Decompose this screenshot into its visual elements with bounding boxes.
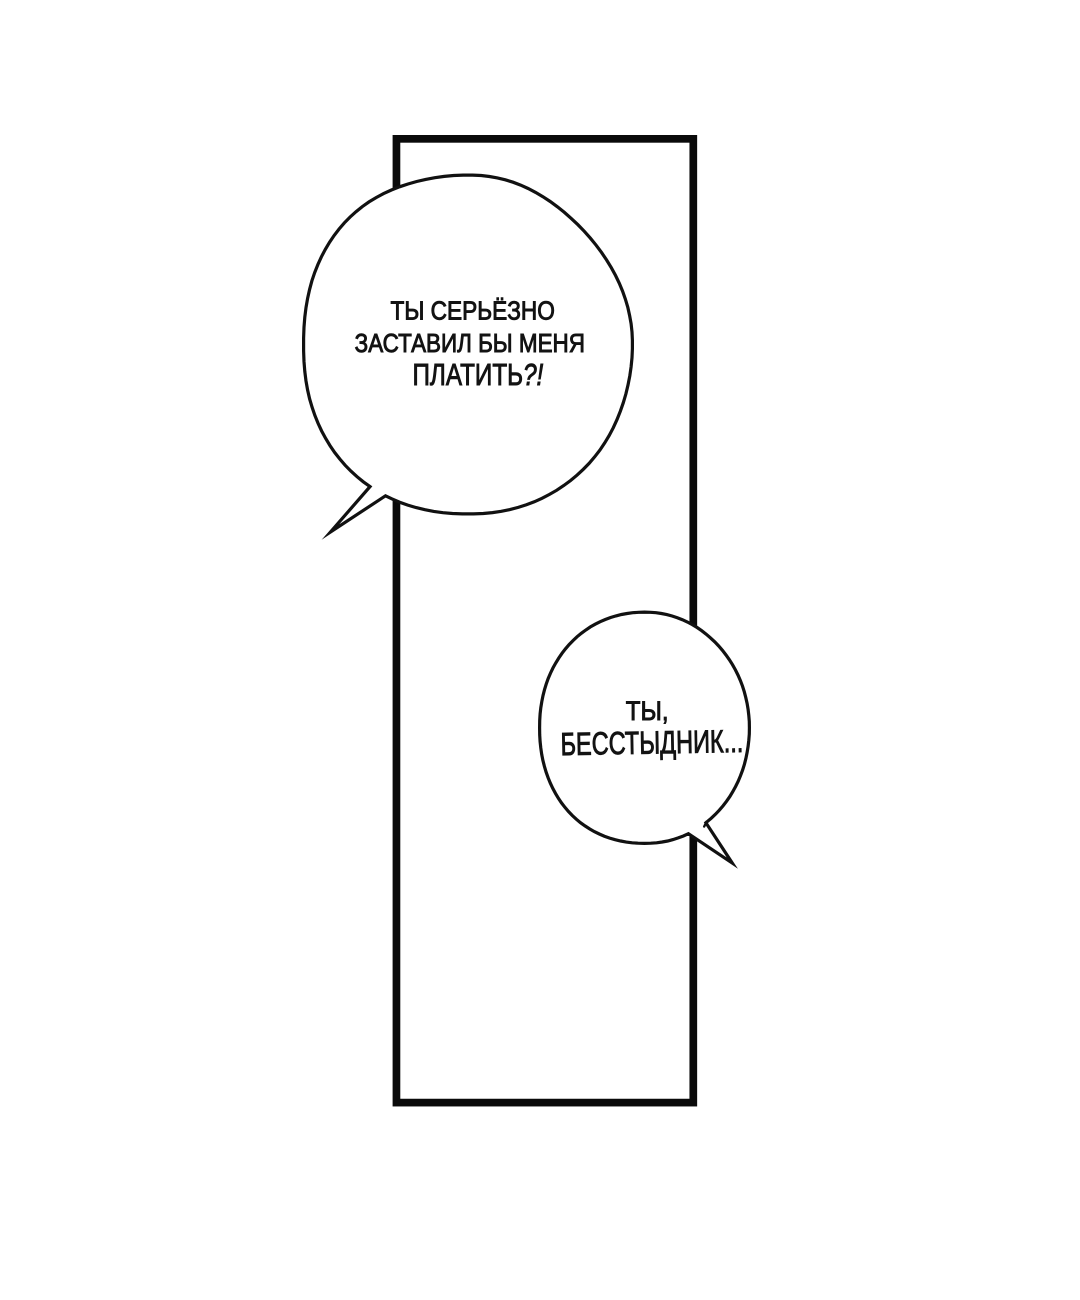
svg-text:ЗАСТАВИЛ БЫ МЕНЯ: ЗАСТАВИЛ БЫ МЕНЯ	[355, 328, 585, 358]
svg-text:ПЛАТИТЬ?!: ПЛАТИТЬ?!	[413, 358, 544, 392]
svg-text:ТЫ,: ТЫ,	[626, 696, 669, 726]
svg-text:ТЫ СЕРЬЁЗНО: ТЫ СЕРЬЁЗНО	[391, 296, 555, 326]
svg-text:БЕССТЫДНИК...: БЕССТЫДНИК...	[560, 723, 743, 762]
